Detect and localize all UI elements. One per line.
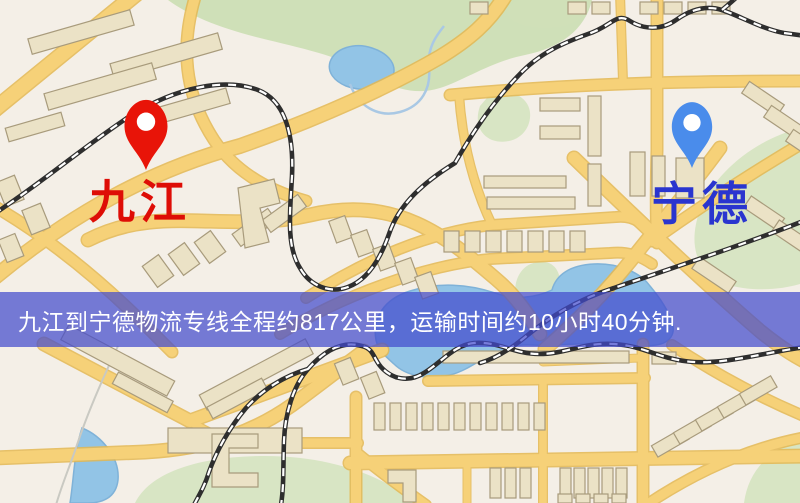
origin-pin-hole (137, 113, 155, 131)
destination-label: 宁德 (651, 179, 753, 230)
map-canvas[interactable]: 九江 宁德 (0, 0, 800, 503)
route-info-text: 九江到宁德物流专线全程约817公里，运输时间约10小时40分钟. (18, 303, 682, 337)
map-screenshot: 九江 宁德 九江到宁德物流专线全程约817公里，运输时间约10小时40分钟. (0, 0, 800, 503)
destination-pin-hole (683, 114, 700, 131)
origin-label: 九江 (89, 177, 191, 228)
route-info-banner: 九江到宁德物流专线全程约817公里，运输时间约10小时40分钟. (0, 292, 800, 347)
